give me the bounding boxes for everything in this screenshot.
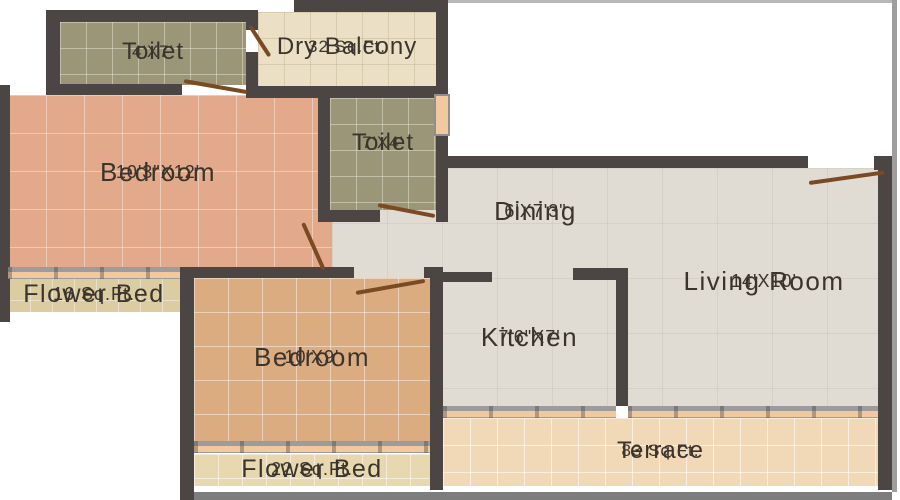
wall [443, 272, 492, 282]
wall [616, 268, 628, 406]
wall [194, 267, 354, 278]
wall [436, 0, 448, 98]
floor-flower-bed2 [194, 454, 430, 486]
wall [318, 210, 380, 222]
floor-toilet1 [60, 22, 246, 85]
floor-plan: Toilet 4'X7' Dry Balcony 32 Sq.Ft. Bedro… [0, 0, 900, 500]
wall [878, 156, 892, 490]
floor-dry-balcony [258, 12, 436, 86]
wall [294, 0, 448, 12]
floor-flower-bed1 [8, 278, 180, 312]
floor-toilet2 [330, 98, 436, 210]
flower-bed1-window [8, 267, 180, 279]
kitchen-window [443, 406, 616, 418]
living-room-window [628, 406, 878, 418]
wall [46, 10, 258, 22]
wall [436, 156, 808, 168]
wall [318, 98, 330, 222]
plot-boundary-bottom [180, 492, 892, 500]
plot-boundary-right [892, 0, 897, 492]
wall [0, 85, 10, 322]
floor-bedroom2 [194, 278, 430, 442]
wall [430, 267, 443, 490]
floor-terrace [443, 418, 878, 486]
toilet-window [434, 94, 450, 136]
wall [46, 10, 60, 95]
wall [180, 267, 194, 500]
wall [46, 84, 182, 95]
plot-boundary-top [440, 0, 897, 3]
floor-bedroom1 [8, 95, 332, 267]
bedroom2-window [194, 441, 430, 453]
wall [246, 86, 448, 98]
